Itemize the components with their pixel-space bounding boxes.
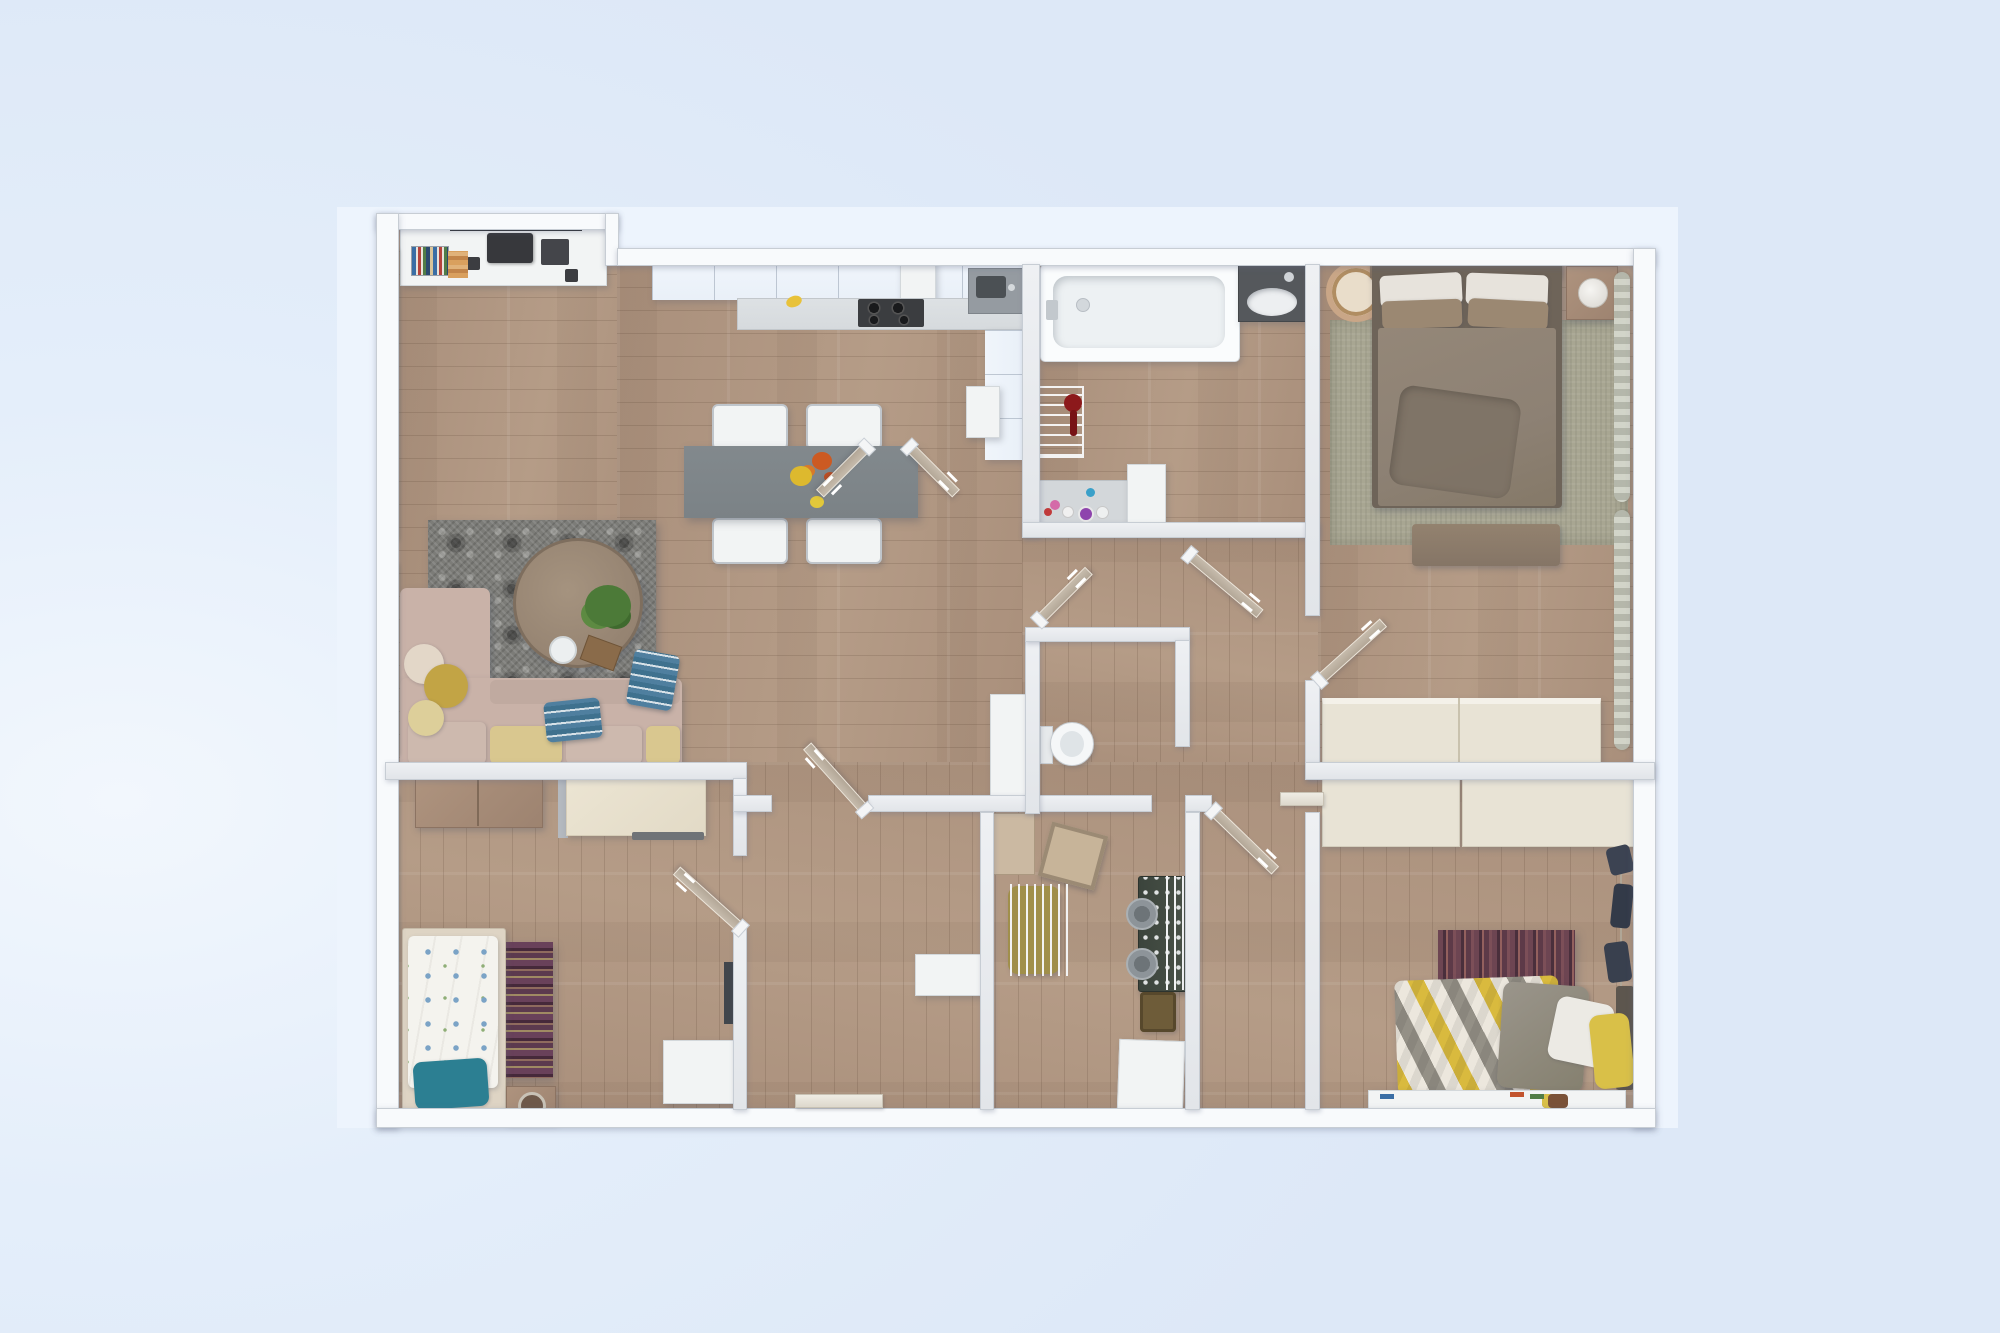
cosmetic-white — [1096, 506, 1109, 519]
small-speaker — [467, 257, 480, 270]
wall-outer-bottom — [376, 1108, 1656, 1128]
seat-cushion-yellow — [646, 726, 680, 764]
flowers-orange — [812, 452, 832, 470]
bedroom-bench — [1412, 524, 1560, 566]
dining-chair — [712, 404, 788, 450]
book-stack — [448, 251, 468, 278]
basin-faucet — [1284, 272, 1294, 282]
kitchen-upper-cabinets — [652, 262, 1022, 300]
wall-mid-vertical — [733, 778, 747, 856]
wall-outer-left — [376, 213, 399, 1128]
cosmetic-red — [1044, 508, 1052, 516]
wall-wc-right — [1175, 640, 1190, 747]
cosmetic-blue — [1086, 488, 1095, 497]
wall-second-bedroom-left — [1305, 812, 1320, 1110]
wall-outer-top-left — [376, 213, 619, 230]
washer-drum — [1126, 898, 1158, 930]
wall-bath-bottom — [1022, 522, 1320, 538]
wall-master-left — [1305, 264, 1320, 616]
bathtub-drain — [1076, 298, 1090, 312]
kids-cabinet — [663, 1040, 739, 1104]
flowers-yellow — [790, 466, 812, 486]
desk-rail — [632, 832, 704, 840]
small-speaker — [565, 269, 578, 282]
wardrobe-seam — [1458, 698, 1460, 763]
wall-wc-left — [1025, 632, 1040, 814]
speaker — [541, 239, 569, 265]
sewing-table — [1140, 992, 1176, 1032]
book-row — [411, 246, 449, 276]
door-leaf-entry — [1280, 792, 1324, 806]
curtain — [1614, 272, 1630, 502]
wall-hall-1 — [733, 795, 772, 812]
dining-chair — [712, 518, 788, 564]
duvet-fold — [1388, 384, 1523, 500]
wall-living-bottom — [385, 762, 747, 780]
hall-shelf — [915, 954, 983, 996]
cosmetic-pink — [1050, 500, 1060, 510]
pillow-brown — [1467, 298, 1548, 330]
wall-mid-vertical-lower — [733, 928, 747, 1110]
crayons — [1380, 1094, 1394, 1099]
wall-outer-right — [1633, 248, 1656, 1128]
dresser-seam — [477, 778, 479, 826]
plate — [549, 636, 577, 664]
toilet-seat — [1060, 731, 1084, 757]
red-lamp-stem — [1070, 410, 1077, 436]
dresser — [415, 778, 543, 828]
wc-cabinet — [990, 694, 1029, 806]
wall-master-bottom — [1305, 762, 1655, 780]
cooktop — [858, 299, 924, 327]
drying-rails — [1166, 876, 1186, 990]
washer-drum — [1126, 948, 1158, 980]
chair-slats — [1010, 884, 1068, 976]
wall-outer-top — [617, 248, 1656, 266]
door-leaf-bottom — [795, 1094, 883, 1108]
faucet — [1008, 284, 1015, 291]
cosmetic-purple — [1078, 506, 1094, 522]
bath-cabinet — [1127, 464, 1166, 524]
wall-bath-left — [1022, 264, 1040, 537]
pillow-brown — [1382, 299, 1463, 330]
dining-chair — [806, 518, 882, 564]
laundry-tan-cabinet — [992, 813, 1035, 875]
cosmetic-white — [1062, 506, 1074, 518]
toy-car — [1542, 1094, 1568, 1108]
wardrobe — [1322, 698, 1601, 770]
wall-hall-2 — [868, 795, 1152, 812]
dishwasher — [966, 386, 1000, 438]
blue-striped-pillow — [543, 697, 603, 743]
sink-basin — [976, 276, 1006, 298]
curtain — [1614, 510, 1630, 750]
bathtub-basin — [1053, 276, 1225, 348]
teal-pillow — [412, 1057, 489, 1110]
closet-unit — [1322, 772, 1460, 847]
bath-faucet — [1046, 300, 1058, 320]
potted-plant — [585, 585, 631, 627]
wall-laundry-right — [1185, 812, 1200, 1110]
blue-striped-pillow — [625, 648, 680, 711]
printer — [487, 233, 533, 263]
storage-box — [1117, 1039, 1186, 1117]
floor-plan-scene — [0, 0, 2000, 1333]
closet-unit — [1462, 772, 1635, 847]
wall-laundry-left — [980, 812, 994, 1110]
wall-wc-top — [1025, 627, 1190, 642]
washbasin — [1247, 288, 1297, 316]
table-lamp — [1578, 278, 1608, 308]
pillow-yellow — [1588, 1012, 1636, 1090]
kids-rug — [503, 942, 553, 1078]
standing-mirror — [724, 962, 733, 1024]
round-pillow-tan — [408, 700, 444, 736]
